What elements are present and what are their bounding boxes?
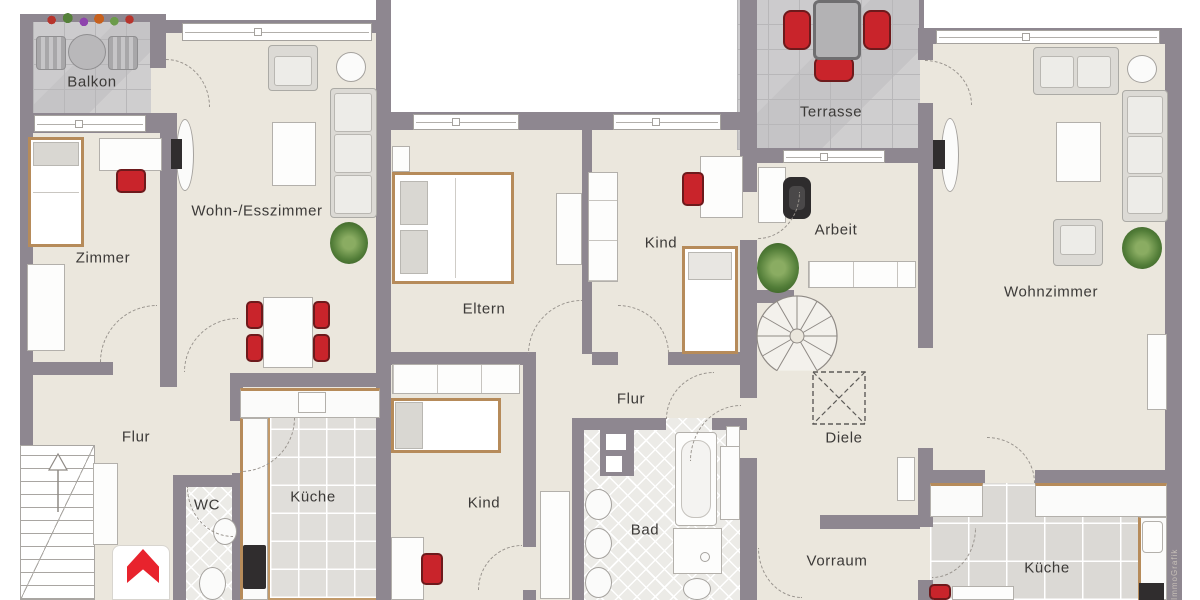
zimmer-chair — [116, 169, 146, 193]
bad-toilet — [585, 567, 612, 598]
kind2-chair — [421, 553, 443, 585]
kueche-right-table — [952, 586, 1014, 600]
dining-table — [263, 297, 313, 368]
kueche-right-chair — [929, 584, 951, 600]
window-eltern — [413, 114, 519, 130]
room-label-terrasse: Terrasse — [800, 104, 862, 121]
kind2-desk — [391, 537, 424, 600]
sofa-cushion — [334, 175, 372, 214]
room-label-flur-links: Flur — [122, 429, 150, 446]
bad-toilet-2 — [683, 578, 711, 600]
sofa-cushion — [334, 93, 372, 132]
bad-pier-niche-1 — [606, 434, 626, 450]
kueche-right-stove — [1139, 583, 1164, 600]
kind2-wardrobe — [392, 364, 520, 394]
kind1-pillow — [688, 252, 732, 280]
wall-bad-top-a — [572, 418, 666, 430]
room-label-zimmer: Zimmer — [76, 250, 130, 267]
eltern-pillow — [400, 230, 428, 274]
sofa-cushion — [1127, 96, 1163, 134]
wall-wz-kueche-b — [1035, 470, 1165, 483]
bad-pier-niche-2 — [606, 456, 622, 472]
room-label-balkon: Balkon — [67, 74, 116, 91]
kind1-wardrobe — [588, 172, 618, 282]
dining-chair — [246, 301, 263, 329]
coffee-table-right — [1056, 122, 1101, 182]
room-label-kueche-rechts: Küche — [1024, 560, 1070, 577]
sofa-cushion — [334, 134, 372, 173]
coffee-table-left — [272, 122, 316, 186]
room-label-wohn-esszimmer: Wohn-/Esszimmer — [191, 203, 322, 220]
dining-chair — [246, 334, 263, 362]
window-wohnzimmer — [936, 30, 1160, 44]
balkon-chair-right — [108, 36, 138, 70]
wall-terrasse-rail — [919, 0, 924, 30]
kind1-chair — [682, 172, 704, 206]
eltern-cabinet — [392, 146, 410, 172]
eltern-pillow — [400, 181, 428, 225]
wall-apartment-divider-1 — [376, 0, 391, 600]
wall-kind2-flur-b — [523, 590, 536, 600]
armchair-top-cushion — [274, 56, 312, 86]
wall-bad-left — [572, 418, 584, 600]
bad-shower — [673, 528, 722, 574]
dining-chair — [313, 301, 330, 329]
tv-icon-left — [171, 139, 182, 169]
wall-wz-diele-a — [918, 28, 933, 60]
wall-diele-vorraum — [820, 515, 920, 529]
zimmer-desk — [99, 138, 162, 171]
flur-mitte-cabinet — [540, 491, 570, 599]
kind2-pillow — [395, 402, 423, 449]
diele-cabinet — [897, 457, 915, 501]
window-wohn-esszimmer — [182, 23, 372, 41]
armchair-cushion — [1060, 225, 1096, 255]
floor-plan: Balkon Zimmer Wohn-/Esszimmer Flur WC Kü… — [0, 0, 1200, 600]
window-arbeit — [783, 150, 885, 163]
kueche-right-counter-b — [1035, 483, 1167, 517]
bad-shower-drain — [700, 552, 710, 562]
room-label-flur-mitte: Flur — [617, 391, 645, 408]
room-label-wc: WC — [194, 497, 220, 514]
zimmer-wardrobe — [27, 264, 65, 351]
tv-icon-right — [933, 140, 945, 169]
room-label-kueche-links: Küche — [290, 489, 336, 506]
wall-zimmer-flur — [33, 362, 113, 375]
eltern-bed-seam — [455, 178, 456, 278]
wohnzimmer-sideboard — [1147, 334, 1167, 410]
terrasse-chair-left — [783, 10, 811, 50]
balkon-table — [68, 34, 106, 70]
bad-sink — [585, 528, 612, 559]
spiral-staircase — [749, 296, 845, 376]
zimmer-bed-seam — [33, 192, 79, 193]
dining-chair — [313, 334, 330, 362]
zimmer-bed-pillow — [33, 142, 79, 166]
room-label-vorraum: Vorraum — [807, 553, 868, 570]
wall-wc-left — [173, 475, 186, 600]
wc-toilet — [199, 567, 226, 600]
room-label-kind-unten: Kind — [468, 495, 500, 512]
plant-icon-arbeit — [757, 243, 799, 293]
window-kind-oben — [613, 114, 721, 130]
wall-wz-kueche-a — [918, 470, 985, 483]
room-label-arbeit: Arbeit — [815, 222, 858, 239]
plant-icon-wohnzimmer — [1122, 227, 1162, 269]
balkon-chair-left — [36, 36, 66, 70]
side-table-round — [336, 52, 366, 82]
kueche-right-counter-a — [930, 483, 983, 517]
room-label-eltern: Eltern — [463, 301, 506, 318]
terrasse-table — [813, 0, 861, 60]
staircase-arrow-icon — [24, 448, 90, 518]
eltern-wardrobe — [556, 193, 582, 265]
room-label-bad: Bad — [631, 522, 660, 539]
kueche-left-oven — [243, 545, 266, 589]
plant-icon-left — [330, 222, 368, 264]
window-balkon — [34, 115, 146, 132]
sofa-cushion — [1040, 56, 1074, 88]
sofa-cushion — [1127, 136, 1163, 174]
bad-sink — [585, 489, 612, 520]
wall-ess-kueche — [230, 373, 378, 387]
kind1-desk — [700, 156, 743, 218]
wall-kind2-flur — [523, 352, 536, 547]
diele-skylight — [812, 371, 866, 425]
terrasse-chair-right — [863, 10, 891, 50]
wall-wz-diele-b — [918, 103, 933, 348]
room-label-wohnzimmer: Wohnzimmer — [1004, 284, 1098, 301]
sofa-cushion — [1127, 176, 1163, 214]
kueche-left-sink — [298, 392, 326, 413]
flur-closet — [93, 463, 118, 545]
side-table-round-right — [1127, 55, 1157, 83]
watermark: ImmoGrafik — [1170, 538, 1179, 600]
wall-kind1-bottom-a — [592, 352, 618, 365]
kueche-right-sink — [1142, 521, 1163, 553]
room-label-kind-oben: Kind — [645, 235, 677, 252]
flower-box-icon — [44, 8, 139, 32]
arbeit-sideboard — [808, 261, 916, 288]
room-label-diele: Diele — [825, 430, 862, 447]
sofa-cushion — [1077, 56, 1111, 88]
